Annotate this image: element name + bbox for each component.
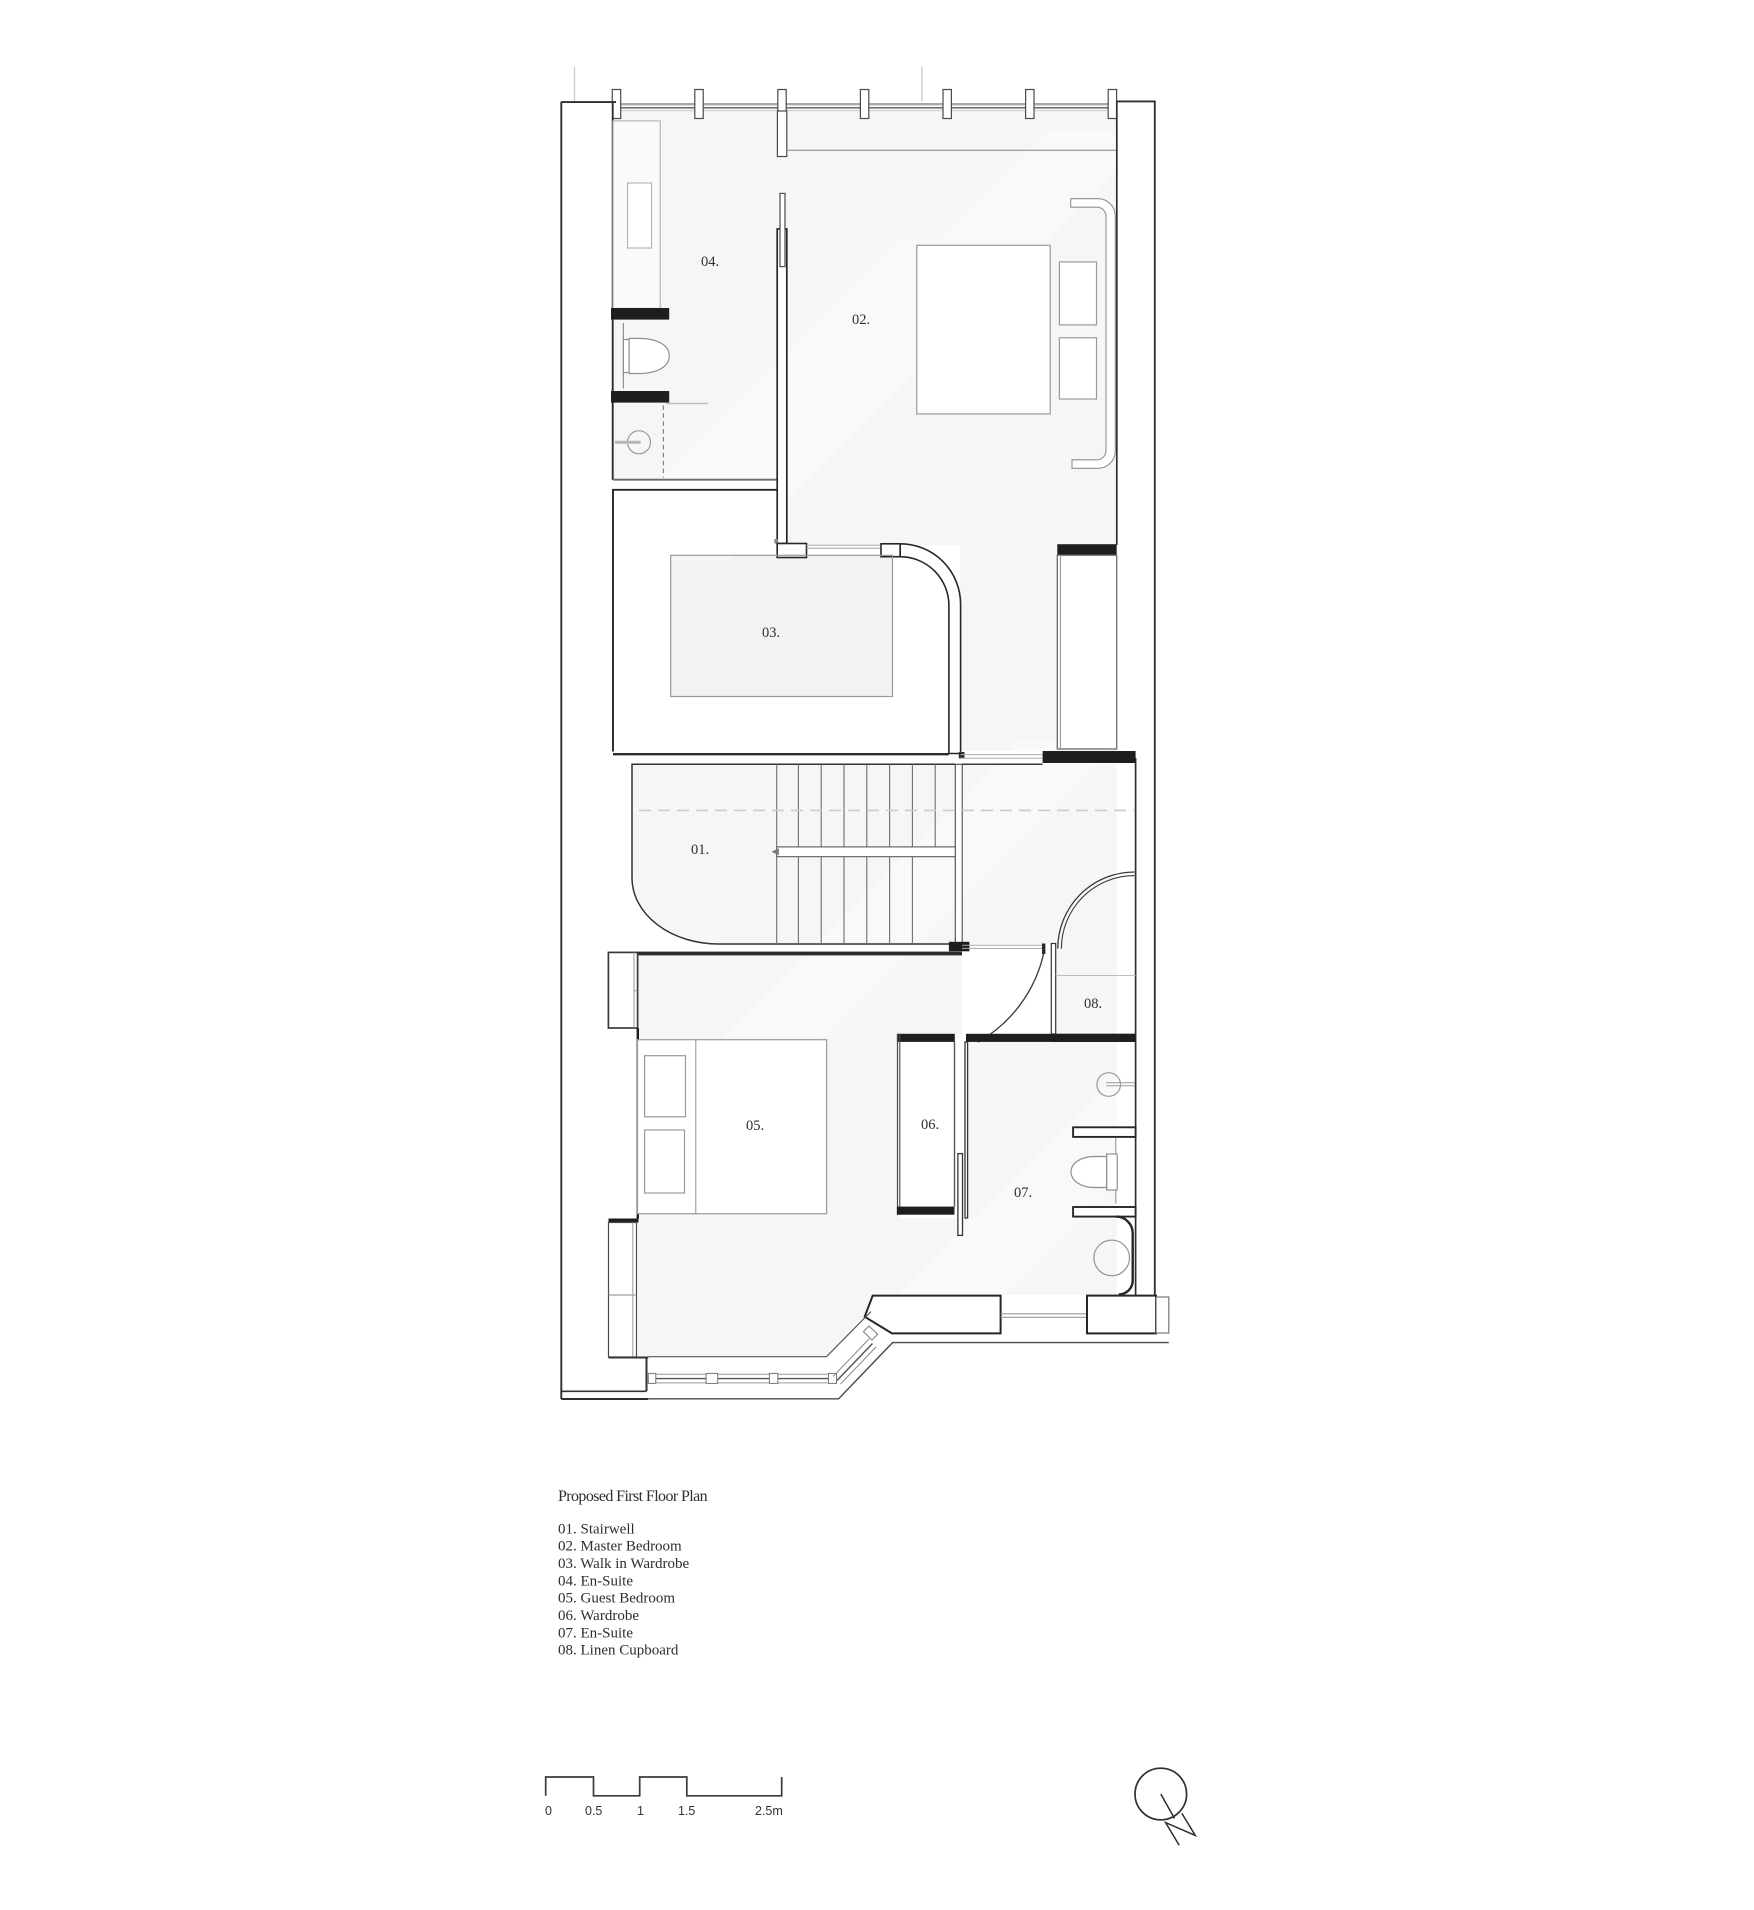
svg-text:04. En-Suite: 04. En-Suite xyxy=(558,1573,633,1589)
svg-text:08. Linen Cupboard: 08. Linen Cupboard xyxy=(558,1643,679,1659)
svg-text:08.: 08. xyxy=(1084,996,1102,1012)
svg-text:06.: 06. xyxy=(921,1117,939,1133)
svg-text:04.: 04. xyxy=(701,254,719,270)
svg-text:Proposed First Floor Plan: Proposed First Floor Plan xyxy=(558,1488,708,1505)
svg-text:01.: 01. xyxy=(691,842,709,858)
svg-text:0: 0 xyxy=(545,1804,552,1818)
svg-text:05.: 05. xyxy=(746,1118,764,1134)
svg-text:1: 1 xyxy=(637,1804,644,1818)
svg-text:0.5: 0.5 xyxy=(585,1804,602,1818)
svg-text:07.: 07. xyxy=(1014,1185,1032,1201)
svg-text:02.: 02. xyxy=(852,312,870,328)
svg-text:05. Guest Bedroom: 05. Guest Bedroom xyxy=(558,1591,675,1607)
svg-text:02. Master Bedroom: 02. Master Bedroom xyxy=(558,1539,682,1555)
svg-text:1.5: 1.5 xyxy=(678,1804,695,1818)
svg-text:06. Wardrobe: 06. Wardrobe xyxy=(558,1608,639,1624)
svg-text:01. Stairwell: 01. Stairwell xyxy=(558,1521,635,1537)
svg-text:2.5m: 2.5m xyxy=(755,1804,783,1818)
svg-text:03. Walk in Wardrobe: 03. Walk in Wardrobe xyxy=(558,1556,690,1572)
svg-text:07. En-Suite: 07. En-Suite xyxy=(558,1625,633,1641)
svg-text:03.: 03. xyxy=(762,625,780,641)
